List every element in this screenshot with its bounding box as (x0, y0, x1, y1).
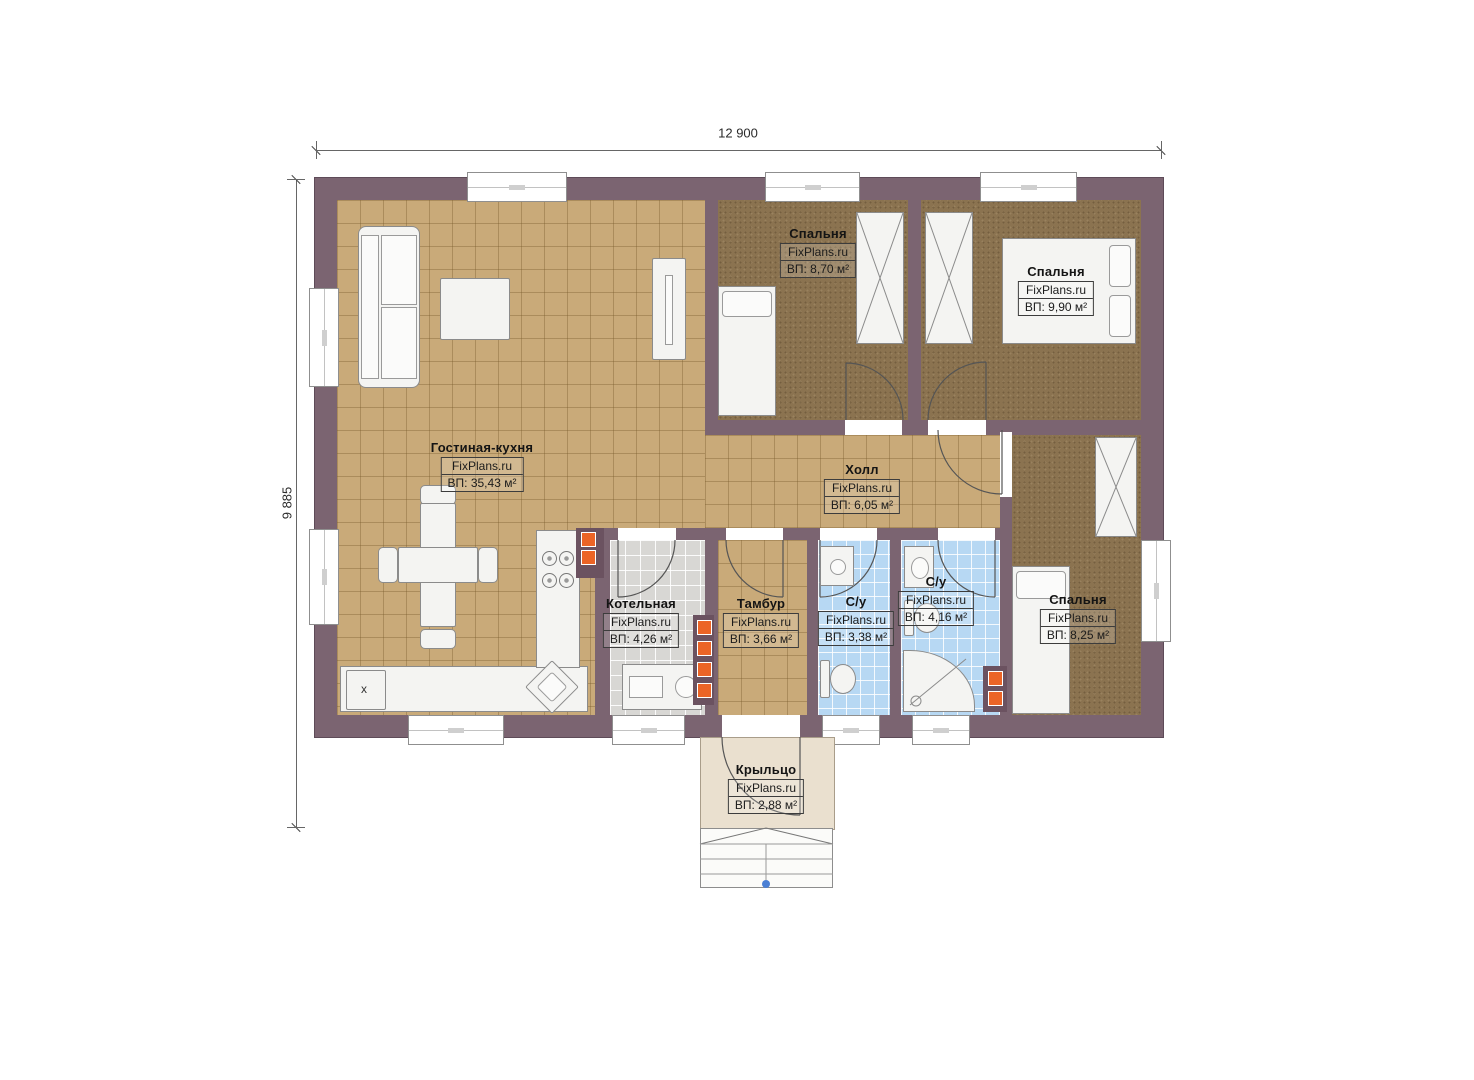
bed-single-bedroom-1 (718, 286, 776, 416)
watermark: FixPlans.ru (899, 592, 973, 609)
window-top-bedroom-1 (765, 172, 860, 202)
room-label-living: Гостиная-кухня FixPlans.ru ВП: 35,43 м² (431, 440, 533, 492)
toilet-bathroom-1 (820, 660, 830, 698)
dining-chair (378, 547, 398, 583)
room-name: С/у (818, 594, 894, 609)
window-right-bedroom-3 (1141, 540, 1171, 642)
window-top-living (467, 172, 567, 202)
room-name: Котельная (603, 596, 679, 611)
room-area: ВП: 4,16 м² (899, 609, 973, 625)
window-bottom-bathroom-2 (912, 715, 970, 745)
toilet-bowl-bathroom-1 (830, 664, 856, 694)
room-name: Спальня (1018, 264, 1094, 279)
vent-grille (581, 550, 596, 565)
window-top-bedroom-2 (980, 172, 1077, 202)
room-area: ВП: 6,05 м² (825, 497, 899, 513)
pillow (722, 291, 772, 317)
pillow (1109, 245, 1131, 287)
dimension-ext (287, 179, 305, 180)
window-left-living-lower (309, 529, 339, 625)
dimension-line-top (316, 150, 1161, 151)
dining-chair (420, 629, 456, 649)
dimension-line-left (296, 179, 297, 827)
stove-burner (542, 551, 557, 566)
room-label-porch: Крыльцо FixPlans.ru ВП: 2,88 м² (728, 762, 804, 814)
tv (665, 275, 673, 345)
stove-burner (542, 573, 557, 588)
door-opening-boiler (618, 528, 676, 540)
dimension-ext (1161, 141, 1162, 159)
door-opening-bathroom-2 (938, 528, 995, 540)
room-label-boiler: Котельная FixPlans.ru ВП: 4,26 м² (603, 596, 679, 648)
room-name: С/у (898, 574, 974, 589)
watermark: FixPlans.ru (724, 614, 798, 631)
vent-grille (697, 620, 712, 635)
watermark: FixPlans.ru (781, 244, 855, 261)
room-area: ВП: 3,38 м² (819, 629, 893, 645)
watermark: FixPlans.ru (604, 614, 678, 631)
room-label-bathroom-1: С/у FixPlans.ru ВП: 3,38 м² (818, 594, 894, 646)
watermark: FixPlans.ru (729, 780, 803, 797)
door-opening-porch (722, 715, 800, 737)
boiler-unit (622, 664, 702, 710)
boiler-panel (629, 676, 663, 698)
sofa-seat (381, 235, 417, 305)
room-area: ВП: 4,26 м² (604, 631, 678, 647)
dining-table (398, 547, 478, 583)
sofa (358, 226, 420, 388)
room-area: ВП: 9,90 м² (1019, 299, 1093, 315)
stove (539, 546, 577, 594)
door-arc-bedroom-2 (928, 362, 986, 420)
stove-burner (559, 551, 574, 566)
stove-burner (559, 573, 574, 588)
dining-chair (478, 547, 498, 583)
dimension-ext (287, 827, 305, 828)
watermark: FixPlans.ru (1041, 610, 1115, 627)
kitchen-sink-basin (536, 671, 567, 702)
room-area: ВП: 35,43 м² (442, 475, 523, 491)
room-name: Спальня (780, 226, 856, 241)
vent-grille (697, 683, 712, 698)
room-label-bedroom-2: Спальня FixPlans.ru ВП: 9,90 м² (1018, 264, 1094, 316)
coffee-table (440, 278, 510, 340)
wardrobe-bedroom-3 (1095, 437, 1137, 537)
vent-grille (697, 641, 712, 656)
shower-tray (903, 650, 975, 712)
watermark: FixPlans.ru (825, 480, 899, 497)
washing-machine (820, 546, 854, 586)
sofa-seat (381, 307, 417, 379)
door-arc-vestibule (726, 540, 783, 597)
washing-machine-door (830, 559, 846, 575)
sofa-backrest (361, 235, 379, 379)
pillow (1109, 295, 1131, 337)
room-area: ВП: 8,25 м² (1041, 627, 1115, 643)
dimension-height-label: 9 885 (280, 487, 295, 520)
fridge: x (346, 670, 386, 710)
door-arc-bedroom-1 (846, 363, 903, 420)
room-label-vestibule: Тамбур FixPlans.ru ВП: 3,66 м² (723, 596, 799, 648)
wardrobe-bedroom-2 (925, 212, 973, 344)
room-name: Гостиная-кухня (431, 440, 533, 455)
fridge-label: x (361, 682, 367, 696)
watermark: FixPlans.ru (1019, 282, 1093, 299)
vent-grille (581, 532, 596, 547)
room-name: Крыльцо (728, 762, 804, 777)
door-opening-bathroom-1 (820, 528, 877, 540)
dimension-ext (316, 141, 317, 159)
room-label-bedroom-3: Спальня FixPlans.ru ВП: 8,25 м² (1040, 592, 1116, 644)
room-name: Тамбур (723, 596, 799, 611)
room-area: ВП: 8,70 м² (781, 261, 855, 277)
door-opening-vestibule (726, 528, 783, 540)
wardrobe-bedroom-1 (856, 212, 904, 344)
watermark: FixPlans.ru (819, 612, 893, 629)
door-opening-bedroom-1 (845, 420, 902, 435)
window-bottom-boiler (612, 715, 685, 745)
room-label-bathroom-2: С/у FixPlans.ru ВП: 4,16 м² (898, 574, 974, 626)
tv-stand (652, 258, 686, 360)
room-name: Холл (824, 462, 900, 477)
window-bottom-kitchen (408, 715, 504, 745)
dimension-width-label: 12 900 (718, 126, 758, 141)
door-arc-boiler (618, 540, 675, 597)
door-arc-bedroom-3 (938, 430, 1002, 494)
entry-marker-dot (762, 880, 770, 888)
watermark: FixPlans.ru (442, 458, 523, 475)
room-area: ВП: 2,88 м² (729, 797, 803, 813)
room-name: Спальня (1040, 592, 1116, 607)
vent-grille (697, 662, 712, 677)
vent-grille (988, 671, 1003, 686)
room-label-hall: Холл FixPlans.ru ВП: 6,05 м² (824, 462, 900, 514)
porch-steps (700, 828, 833, 888)
floor-plan-canvas: 12 900 9 885 (0, 0, 1474, 1080)
room-area: ВП: 3,66 м² (724, 631, 798, 647)
room-label-bedroom-1: Спальня FixPlans.ru ВП: 8,70 м² (780, 226, 856, 278)
window-left-living-upper (309, 288, 339, 387)
vent-grille (988, 691, 1003, 706)
